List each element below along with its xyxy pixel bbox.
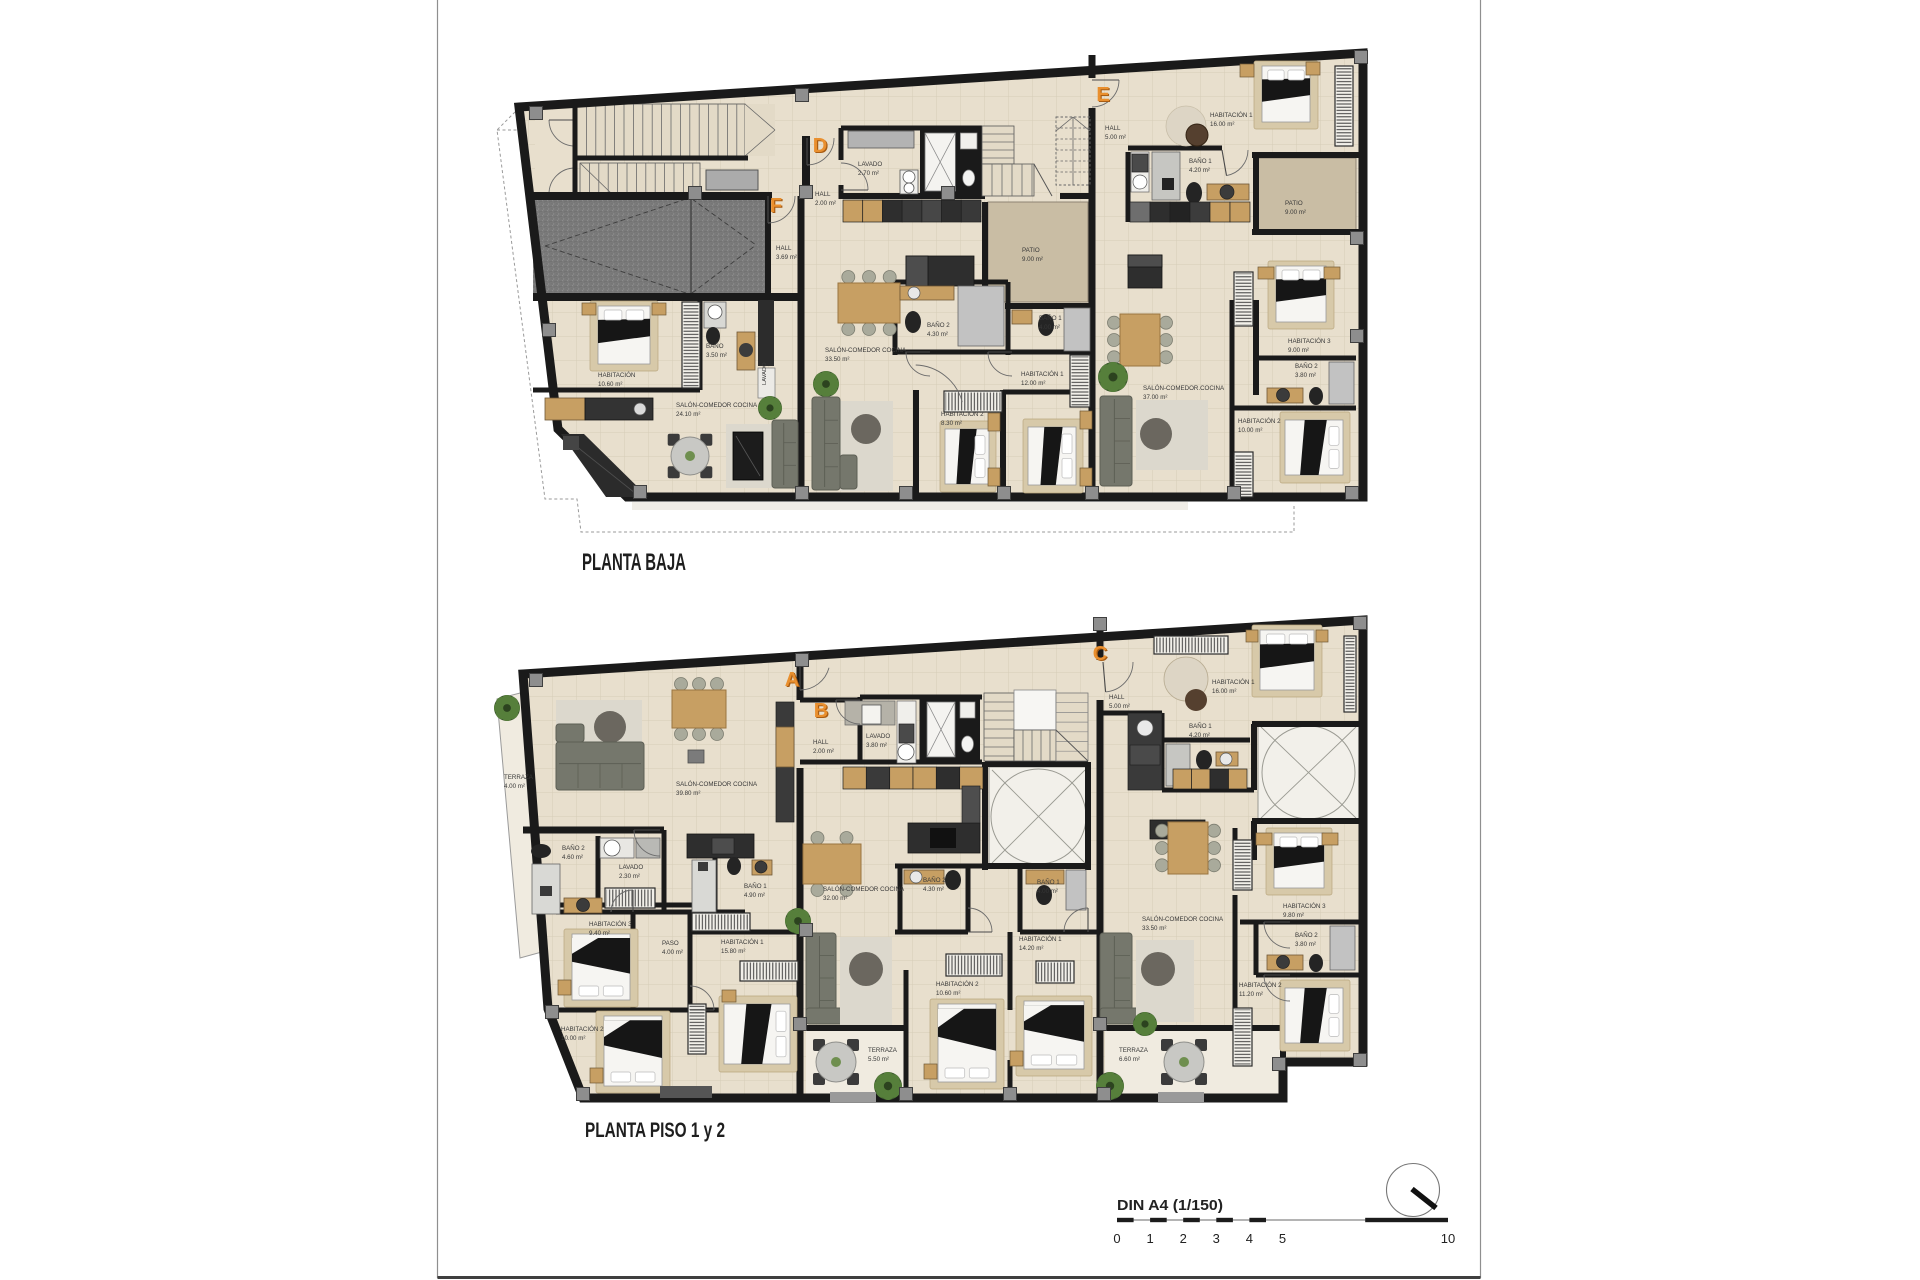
- svg-text:HABITACIÓN 3: HABITACIÓN 3: [589, 921, 632, 928]
- svg-text:SALÓN-COMEDOR COCINA: SALÓN-COMEDOR COCINA: [823, 886, 905, 893]
- svg-text:33.50 m²: 33.50 m²: [825, 356, 849, 363]
- svg-text:BAÑO 1: BAÑO 1: [1037, 879, 1060, 886]
- svg-text:SALÓN-COMEDOR.COCINA: SALÓN-COMEDOR.COCINA: [1143, 385, 1225, 392]
- svg-text:39.80 m²: 39.80 m²: [676, 790, 700, 797]
- svg-text:BAÑO 2: BAÑO 2: [1295, 932, 1318, 939]
- svg-text:5.00 m²: 5.00 m²: [1109, 703, 1130, 710]
- svg-text:24.10 m²: 24.10 m²: [676, 411, 700, 418]
- svg-text:TERRAZA: TERRAZA: [868, 1047, 898, 1054]
- svg-text:3.50 m²: 3.50 m²: [706, 352, 727, 359]
- svg-text:4.00 m²: 4.00 m²: [1039, 324, 1060, 331]
- svg-text:0: 0: [1113, 1231, 1120, 1246]
- svg-text:BAÑO 1: BAÑO 1: [1189, 158, 1212, 165]
- svg-text:4.00 m²: 4.00 m²: [662, 949, 683, 956]
- svg-text:HABITACIÓN 2: HABITACIÓN 2: [1239, 982, 1282, 989]
- svg-text:12.00 m²: 12.00 m²: [1021, 380, 1045, 387]
- svg-text:HALL: HALL: [815, 191, 831, 198]
- svg-text:HABITACIÓN 2: HABITACIÓN 2: [936, 981, 979, 988]
- svg-text:2.30 m²: 2.30 m²: [619, 873, 640, 880]
- svg-text:8.30 m²: 8.30 m²: [941, 420, 962, 427]
- svg-text:4: 4: [1246, 1231, 1253, 1246]
- svg-text:HABITACIÓN 2: HABITACIÓN 2: [561, 1026, 604, 1033]
- svg-text:HALL: HALL: [813, 739, 829, 746]
- svg-text:E: E: [1096, 84, 1109, 106]
- svg-text:PATIO: PATIO: [1022, 247, 1040, 254]
- svg-text:11.20 m²: 11.20 m²: [1239, 991, 1263, 998]
- svg-text:4.30 m²: 4.30 m²: [923, 886, 944, 893]
- svg-text:9.00 m²: 9.00 m²: [1285, 209, 1306, 216]
- svg-text:2.70 m²: 2.70 m²: [858, 170, 879, 177]
- svg-text:BAÑO: BAÑO: [706, 343, 724, 350]
- svg-text:BAÑO 1: BAÑO 1: [1189, 723, 1212, 730]
- svg-text:9.00 m²: 9.00 m²: [1288, 347, 1309, 354]
- svg-text:5.50 m²: 5.50 m²: [868, 1056, 889, 1063]
- svg-text:1: 1: [1146, 1231, 1153, 1246]
- svg-text:4.30 m²: 4.30 m²: [927, 331, 948, 338]
- svg-text:LAVADO: LAVADO: [866, 733, 890, 740]
- svg-text:5.00 m²: 5.00 m²: [1105, 134, 1126, 141]
- svg-text:6.60 m²: 6.60 m²: [1119, 1056, 1140, 1063]
- svg-text:HABITACIÓN 3: HABITACIÓN 3: [1288, 338, 1331, 345]
- svg-text:LAVADO: LAVADO: [858, 161, 882, 168]
- svg-text:LAVADO: LAVADO: [762, 362, 768, 385]
- svg-text:HABITACIÓN 1: HABITACIÓN 1: [1212, 679, 1255, 686]
- svg-text:10: 10: [1441, 1231, 1455, 1246]
- svg-text:HABITACIÓN 2: HABITACIÓN 2: [1238, 418, 1281, 425]
- svg-text:10.60 m²: 10.60 m²: [598, 381, 622, 388]
- svg-text:PLANTA BAJA: PLANTA BAJA: [582, 549, 686, 576]
- svg-text:TERRAZA: TERRAZA: [1119, 1047, 1149, 1054]
- svg-text:5: 5: [1279, 1231, 1286, 1246]
- svg-text:2: 2: [1180, 1231, 1187, 1246]
- svg-text:4.00 m²: 4.00 m²: [504, 783, 525, 790]
- svg-text:HABITACIÓN 1: HABITACIÓN 1: [1021, 371, 1064, 378]
- svg-text:D: D: [813, 135, 827, 157]
- svg-text:10.00 m²: 10.00 m²: [1238, 427, 1262, 434]
- svg-text:LAVADO: LAVADO: [619, 864, 643, 871]
- svg-text:4.90 m²: 4.90 m²: [744, 892, 765, 899]
- svg-text:PATIO: PATIO: [1285, 200, 1303, 207]
- svg-text:15.80 m²: 15.80 m²: [721, 948, 745, 955]
- svg-text:10.00 m²: 10.00 m²: [561, 1035, 585, 1042]
- svg-text:32.00 m²: 32.00 m²: [823, 895, 847, 902]
- svg-text:3: 3: [1213, 1231, 1220, 1246]
- svg-text:4.20 m²: 4.20 m²: [1189, 732, 1210, 739]
- svg-text:4.20 m²: 4.20 m²: [1189, 167, 1210, 174]
- svg-text:PASO: PASO: [662, 940, 679, 947]
- svg-text:HABITACIÓN: HABITACIÓN: [598, 372, 635, 379]
- svg-text:BAÑO 2: BAÑO 2: [1295, 363, 1318, 370]
- svg-text:33.50 m²: 33.50 m²: [1142, 925, 1166, 932]
- svg-text:BAÑO 1: BAÑO 1: [744, 883, 767, 890]
- svg-text:37.00 m²: 37.00 m²: [1143, 394, 1167, 401]
- svg-text:SALÓN-COMEDOR COCINA: SALÓN-COMEDOR COCINA: [825, 347, 907, 354]
- svg-text:3.80 m²: 3.80 m²: [1295, 941, 1316, 948]
- svg-text:BAÑO 1: BAÑO 1: [1039, 315, 1062, 322]
- svg-text:PLANTA PISO 1 y 2: PLANTA PISO 1 y 2: [585, 1119, 725, 1142]
- svg-text:16.00 m²: 16.00 m²: [1212, 688, 1236, 695]
- svg-text:16.00 m²: 16.00 m²: [1210, 121, 1234, 128]
- svg-text:BAÑO 2: BAÑO 2: [562, 845, 585, 852]
- svg-text:4.00 m²: 4.00 m²: [1037, 888, 1058, 895]
- svg-text:14.20 m²: 14.20 m²: [1019, 945, 1043, 952]
- svg-text:HABITACIÓN 3: HABITACIÓN 3: [1283, 903, 1326, 910]
- svg-text:DIN A4 (1/150): DIN A4 (1/150): [1117, 1198, 1223, 1214]
- svg-text:B: B: [814, 700, 828, 722]
- svg-text:TERRAZA: TERRAZA: [504, 774, 534, 781]
- svg-text:10.60 m²: 10.60 m²: [936, 990, 960, 997]
- svg-text:BAÑO 2: BAÑO 2: [927, 322, 950, 329]
- svg-text:HABITACIÓN 1: HABITACIÓN 1: [721, 939, 764, 946]
- svg-text:A: A: [785, 669, 799, 691]
- svg-text:HABITACIÓN 1: HABITACIÓN 1: [1019, 936, 1062, 943]
- svg-text:HABITACIÓN 2: HABITACIÓN 2: [941, 411, 984, 418]
- svg-text:HALL: HALL: [1109, 694, 1125, 701]
- svg-text:C: C: [1093, 643, 1107, 665]
- svg-text:2.00 m²: 2.00 m²: [813, 748, 834, 755]
- svg-text:BAÑO 2: BAÑO 2: [923, 877, 946, 884]
- svg-text:HABITACIÓN 1: HABITACIÓN 1: [1210, 112, 1253, 119]
- svg-text:SALÓN-COMEDOR COCINA: SALÓN-COMEDOR COCINA: [1142, 916, 1224, 923]
- svg-text:3.80 m²: 3.80 m²: [1295, 372, 1316, 379]
- svg-text:HALL: HALL: [776, 245, 792, 252]
- svg-text:9.00 m²: 9.00 m²: [1022, 256, 1043, 263]
- svg-text:4.60 m²: 4.60 m²: [562, 854, 583, 861]
- svg-text:F: F: [770, 195, 782, 217]
- svg-text:3.80 m²: 3.80 m²: [866, 742, 887, 749]
- svg-text:SALÓN-COMEDOR COCINA: SALÓN-COMEDOR COCINA: [676, 402, 758, 409]
- svg-text:9.40 m²: 9.40 m²: [589, 930, 610, 937]
- svg-text:3.69 m²: 3.69 m²: [776, 254, 797, 261]
- svg-text:9.80 m²: 9.80 m²: [1283, 912, 1304, 919]
- svg-text:SALÓN-COMEDOR COCINA: SALÓN-COMEDOR COCINA: [676, 781, 758, 788]
- svg-text:HALL: HALL: [1105, 125, 1121, 132]
- svg-text:2.00 m²: 2.00 m²: [815, 200, 836, 207]
